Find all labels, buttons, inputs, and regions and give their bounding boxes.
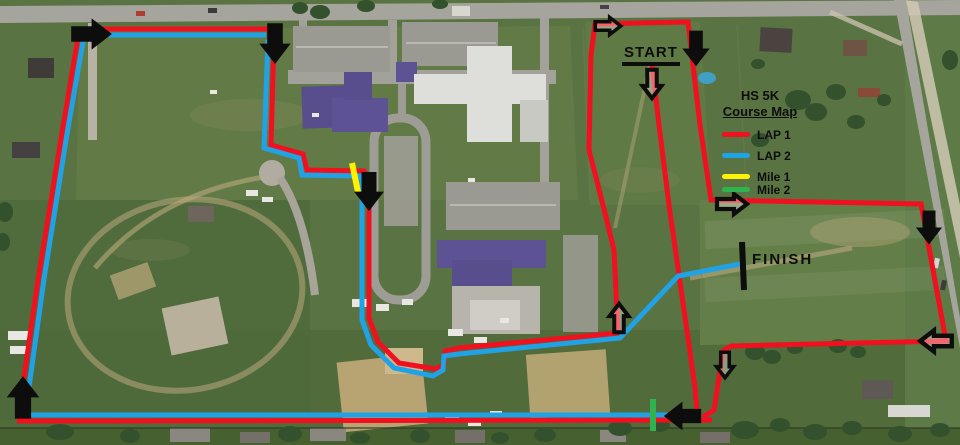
legend-item-mile-2: Mile 2 — [708, 183, 812, 196]
legend-label: Mile 1 — [757, 170, 790, 184]
finish-label: FINISH — [752, 251, 813, 268]
lap2-west-edge — [26, 36, 84, 409]
course-legend: HS 5K Course Map LAP 1LAP 2Mile 1Mile 2 — [708, 88, 812, 196]
arrow-up-to-finish-junction — [610, 304, 629, 333]
start-label: START — [622, 44, 680, 66]
legend-rows: LAP 1LAP 2Mile 1Mile 2 — [708, 128, 812, 196]
arrow-down-below-start — [643, 70, 662, 99]
legend-item-mile-1: Mile 1 — [708, 170, 812, 183]
lap1-start-stretch — [652, 64, 697, 411]
legend-swatch — [722, 187, 750, 192]
legend-swatch — [722, 174, 750, 179]
mile1-mark — [352, 163, 358, 192]
lap1-north-loop — [589, 22, 946, 417]
legend-item-lap-1: LAP 1 — [708, 128, 812, 141]
arrow-left-southeast — [920, 331, 952, 352]
finish-line — [742, 242, 744, 290]
lap1-west-loop — [271, 38, 619, 369]
legend-title: HS 5K — [708, 88, 812, 103]
arrow-right-start-corner — [595, 18, 621, 35]
lap1-west-edge — [19, 31, 79, 412]
legend-swatch — [722, 132, 750, 137]
legend-subtitle: Course Map — [708, 104, 812, 119]
legend-label: LAP 1 — [757, 128, 791, 142]
legend-label: Mile 2 — [757, 183, 790, 197]
legend-swatch — [722, 153, 750, 158]
course-map: START FINISH HS 5K Course Map LAP 1LAP 2… — [0, 0, 960, 445]
legend-item-lap-2: LAP 2 — [708, 149, 812, 162]
course-overlay — [0, 0, 960, 445]
arrow-right-to-east-field — [717, 194, 747, 214]
legend-label: LAP 2 — [757, 149, 791, 163]
lap1-bottom — [17, 420, 712, 421]
